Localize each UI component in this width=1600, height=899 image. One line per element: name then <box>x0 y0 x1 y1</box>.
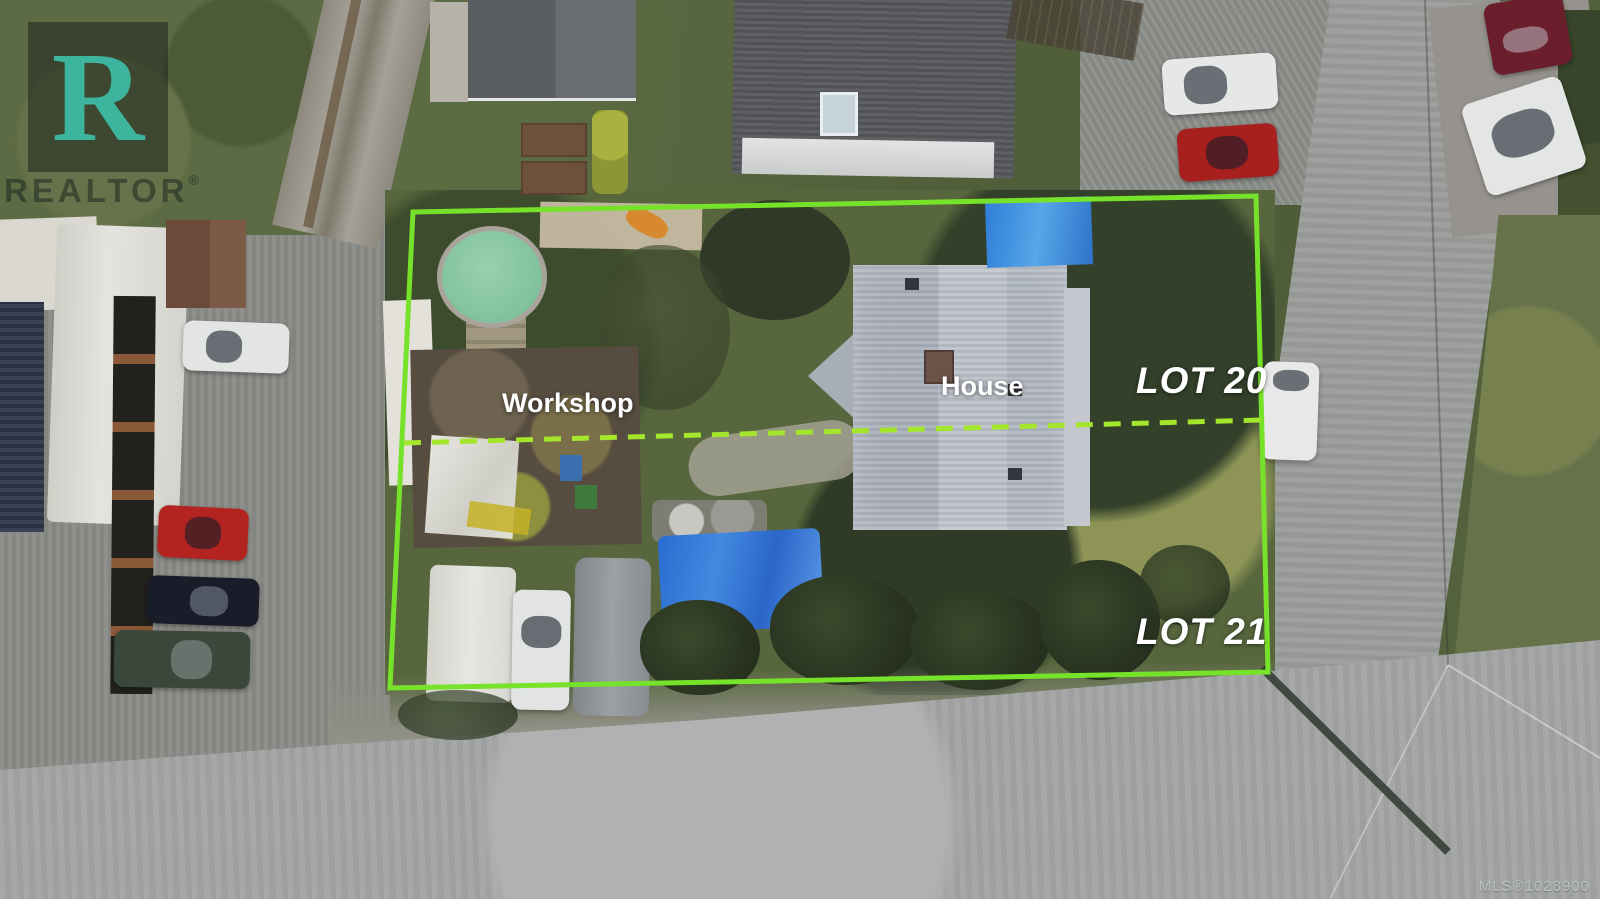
car-white-left <box>182 320 290 374</box>
house-extension <box>1064 288 1090 526</box>
realtor-logo-letter: R <box>52 33 144 161</box>
blue-tarp-boat <box>985 196 1093 268</box>
recycle-bin-green <box>575 485 597 509</box>
recycle-bin-blue <box>560 455 582 481</box>
van-white-roadside <box>1260 361 1319 461</box>
garden-box <box>521 161 587 195</box>
mls-number: MLS®1028900 <box>1479 878 1590 895</box>
brown-shed <box>166 220 246 308</box>
neighbor-house-wall <box>742 138 995 178</box>
lot-21-label: LOT 21 <box>1136 611 1267 653</box>
shrub <box>640 600 760 695</box>
roof-vent <box>905 278 919 290</box>
realtor-wordmark: REALTOR® <box>4 172 203 210</box>
car-white-yard <box>511 590 571 711</box>
lot-20-label: LOT 20 <box>1136 360 1267 402</box>
realtor-brand-text: REALTOR <box>4 172 188 209</box>
fence-dark <box>1006 0 1144 61</box>
aerial-property-photo: Workshop House LOT 20 LOT 21 R REALTOR® … <box>0 0 1600 899</box>
house-label: House <box>941 371 1024 402</box>
shrub <box>910 590 1050 690</box>
suv-green-left <box>114 630 251 689</box>
shrub <box>398 690 518 740</box>
rv-trailer <box>426 565 517 704</box>
realtor-logo-square: R <box>28 22 168 172</box>
car-red-right <box>1176 123 1279 183</box>
realtor-watermark: R REALTOR® <box>0 0 205 215</box>
workshop-label: Workshop <box>502 388 634 419</box>
registered-symbol: ® <box>188 172 202 188</box>
neighbor-shed <box>468 0 636 98</box>
wood-deck <box>540 202 703 251</box>
covered-truck <box>573 557 652 716</box>
car-white-right <box>1161 52 1279 116</box>
car-black-left <box>146 575 260 627</box>
skylight <box>820 92 858 136</box>
shrub <box>770 575 920 685</box>
navy-roof-building <box>0 302 44 532</box>
garden-box <box>521 123 587 157</box>
round-pool <box>437 226 547 328</box>
hedge-bush <box>592 110 628 194</box>
white-tarp-boat <box>1087 196 1181 267</box>
concrete-pad <box>430 2 468 102</box>
car-red-left <box>157 505 250 562</box>
roof-vent <box>1008 468 1022 480</box>
